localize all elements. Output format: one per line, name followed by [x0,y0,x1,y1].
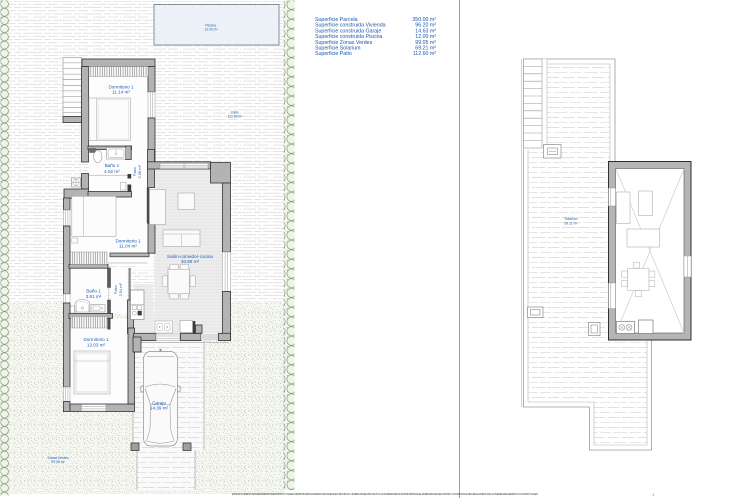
svg-text:14.39 m²: 14.39 m² [150,406,169,411]
svg-text:4.02 m²: 4.02 m² [104,169,120,174]
svg-text:11.04 m²: 11.04 m² [119,244,137,249]
svg-text:Dormitorio 1: Dormitorio 1 [83,337,108,342]
svg-text:ESTE DOCUMENTO ES MERAMENTE OR: ESTE DOCUMENTO ES MERAMENTE ORIENTATIVO … [232,492,538,496]
svg-text:99.05 m²: 99.05 m² [51,460,65,464]
svg-text:Superficie Patio: Superficie Patio [315,51,352,57]
svg-text:30.68 m²: 30.68 m² [181,259,200,264]
svg-text:Baño 1: Baño 1 [105,163,120,168]
svg-text:Dormitorio 1: Dormitorio 1 [108,84,133,89]
svg-text:12.03 m²: 12.03 m² [87,343,106,348]
svg-text:2.54 m²: 2.54 m² [118,282,123,296]
svg-text:112.60 m²: 112.60 m² [228,115,244,119]
svg-text:Salón-comedor-cocina: Salón-comedor-cocina [167,254,213,259]
svg-text:Dormitorio 1: Dormitorio 1 [115,238,140,243]
svg-text:2.56 m²: 2.56 m² [137,164,142,178]
svg-text:Baño 1: Baño 1 [86,289,101,294]
svg-text:69.21 m²: 69.21 m² [564,221,578,225]
svg-text:12.00 m²: 12.00 m² [204,27,218,31]
svg-text:3.91 m²: 3.91 m² [86,294,102,299]
svg-text:Garaje: Garaje [152,400,166,405]
svg-text:112.60 m²: 112.60 m² [413,51,436,57]
svg-text:11.14 m²: 11.14 m² [112,90,130,95]
